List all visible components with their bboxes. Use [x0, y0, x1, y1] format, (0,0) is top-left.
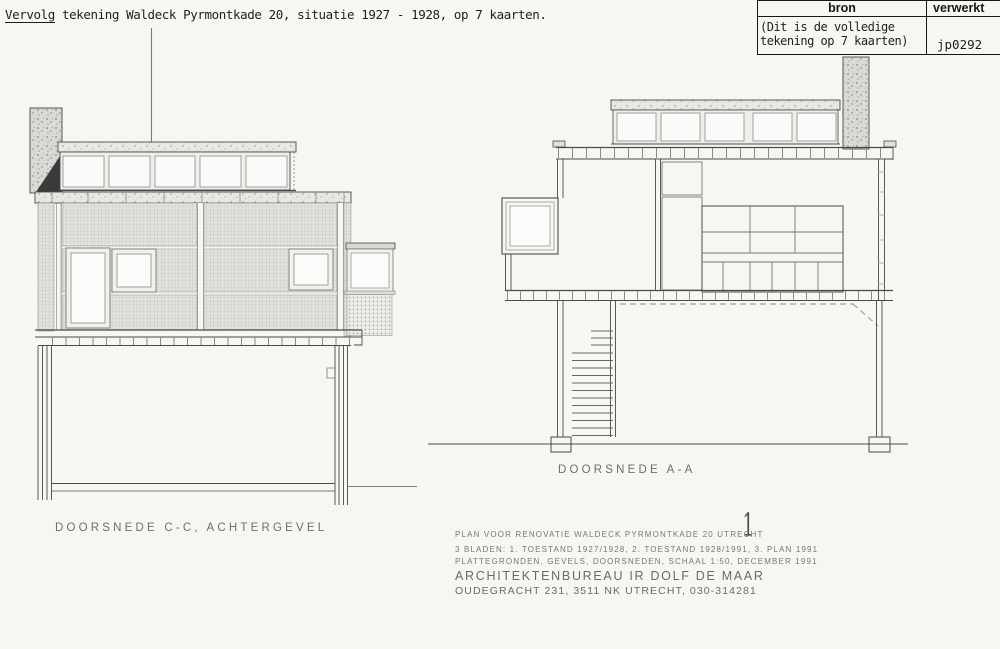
scanned-drawing-page: Vervolg tekening Waldeck Pyrmontkade 20,…: [0, 0, 1000, 649]
page-title: Vervolg tekening Waldeck Pyrmontkade 20,…: [5, 7, 547, 22]
column-header-bron: bron: [758, 1, 926, 16]
processed-code-cell: jp0292: [928, 17, 1000, 55]
title-block-line2: 3 BLADEN: 1. TOESTAND 1927/1928, 2. TOES…: [455, 545, 818, 554]
source-table: bron verwerkt (Dit is de volledige teken…: [757, 0, 1000, 55]
column-header-verwerkt: verwerkt: [926, 1, 1000, 16]
table-column-divider: [926, 1, 927, 54]
title-block: PLAN VOOR RENOVATIE WALDECK PYRMONTKADE …: [455, 530, 818, 597]
source-note-line1: (Dit is de volledige: [760, 20, 928, 34]
header-underlined-word: Vervolg: [5, 7, 55, 23]
table-header-row: bron verwerkt: [758, 1, 1000, 17]
title-block-line1: PLAN VOOR RENOVATIE WALDECK PYRMONTKADE …: [455, 530, 818, 539]
title-block-address: OUDEGRACHT 231, 3511 NK UTRECHT, 030-314…: [455, 585, 818, 597]
label-doorsnede-aa: DOORSNEDE A-A: [558, 464, 695, 476]
title-block-firm: ARCHITEKTENBUREAU IR DOLF DE MAAR: [455, 569, 818, 583]
source-note-line2: tekening op 7 kaarten): [760, 34, 928, 48]
section-aa-drawing: [428, 57, 908, 452]
table-body-row: (Dit is de volledige tekening op 7 kaart…: [758, 17, 1000, 55]
header-text: tekening Waldeck Pyrmontkade 20, situati…: [55, 7, 547, 22]
section-cc-drawing: [30, 28, 417, 505]
title-block-line3: PLATTEGRONDEN, GEVELS, DOORSNEDEN, SCHAA…: [455, 557, 818, 566]
source-note-cell: (Dit is de volledige tekening op 7 kaart…: [758, 17, 928, 55]
label-doorsnede-cc: DOORSNEDE C-C, ACHTERGEVEL: [55, 522, 327, 534]
